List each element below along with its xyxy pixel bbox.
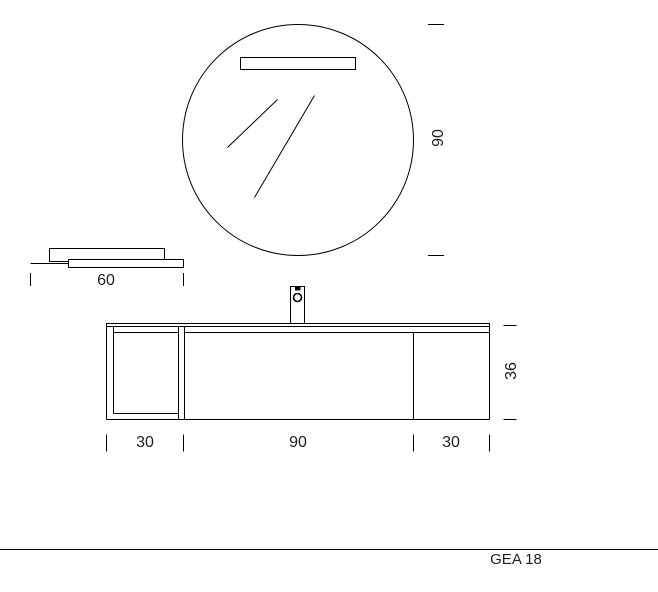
wall-shelf-slab [69,260,184,268]
faucet-body [291,287,305,324]
mirror-reflection-line-1 [228,100,278,148]
mirror-diameter-label: 90 [424,123,454,153]
mirror-group [183,25,414,256]
vanity-countertop [107,324,490,327]
mirror-circle [183,25,414,256]
vanity-width-label-right: 30 [421,434,481,452]
shelf-width-label: 60 [76,272,136,290]
vanity-group [107,324,490,420]
dimension-drawing-svg [0,0,658,592]
vanity-width-label-left: 30 [115,434,175,452]
mirror-light-fixture [241,58,356,70]
vanity-width-label-center: 90 [268,434,328,452]
mirror-reflection-line-2 [255,96,315,198]
faucet-group [291,287,305,324]
faucet-spout [295,287,301,291]
vanity-height-label: 36 [497,356,527,386]
model-name-label: GEA 18 [466,551,566,569]
vanity-dimension-ticks [107,326,517,452]
technical-drawing-page: 90 60 30 90 30 36 GEA 18 [0,0,658,592]
